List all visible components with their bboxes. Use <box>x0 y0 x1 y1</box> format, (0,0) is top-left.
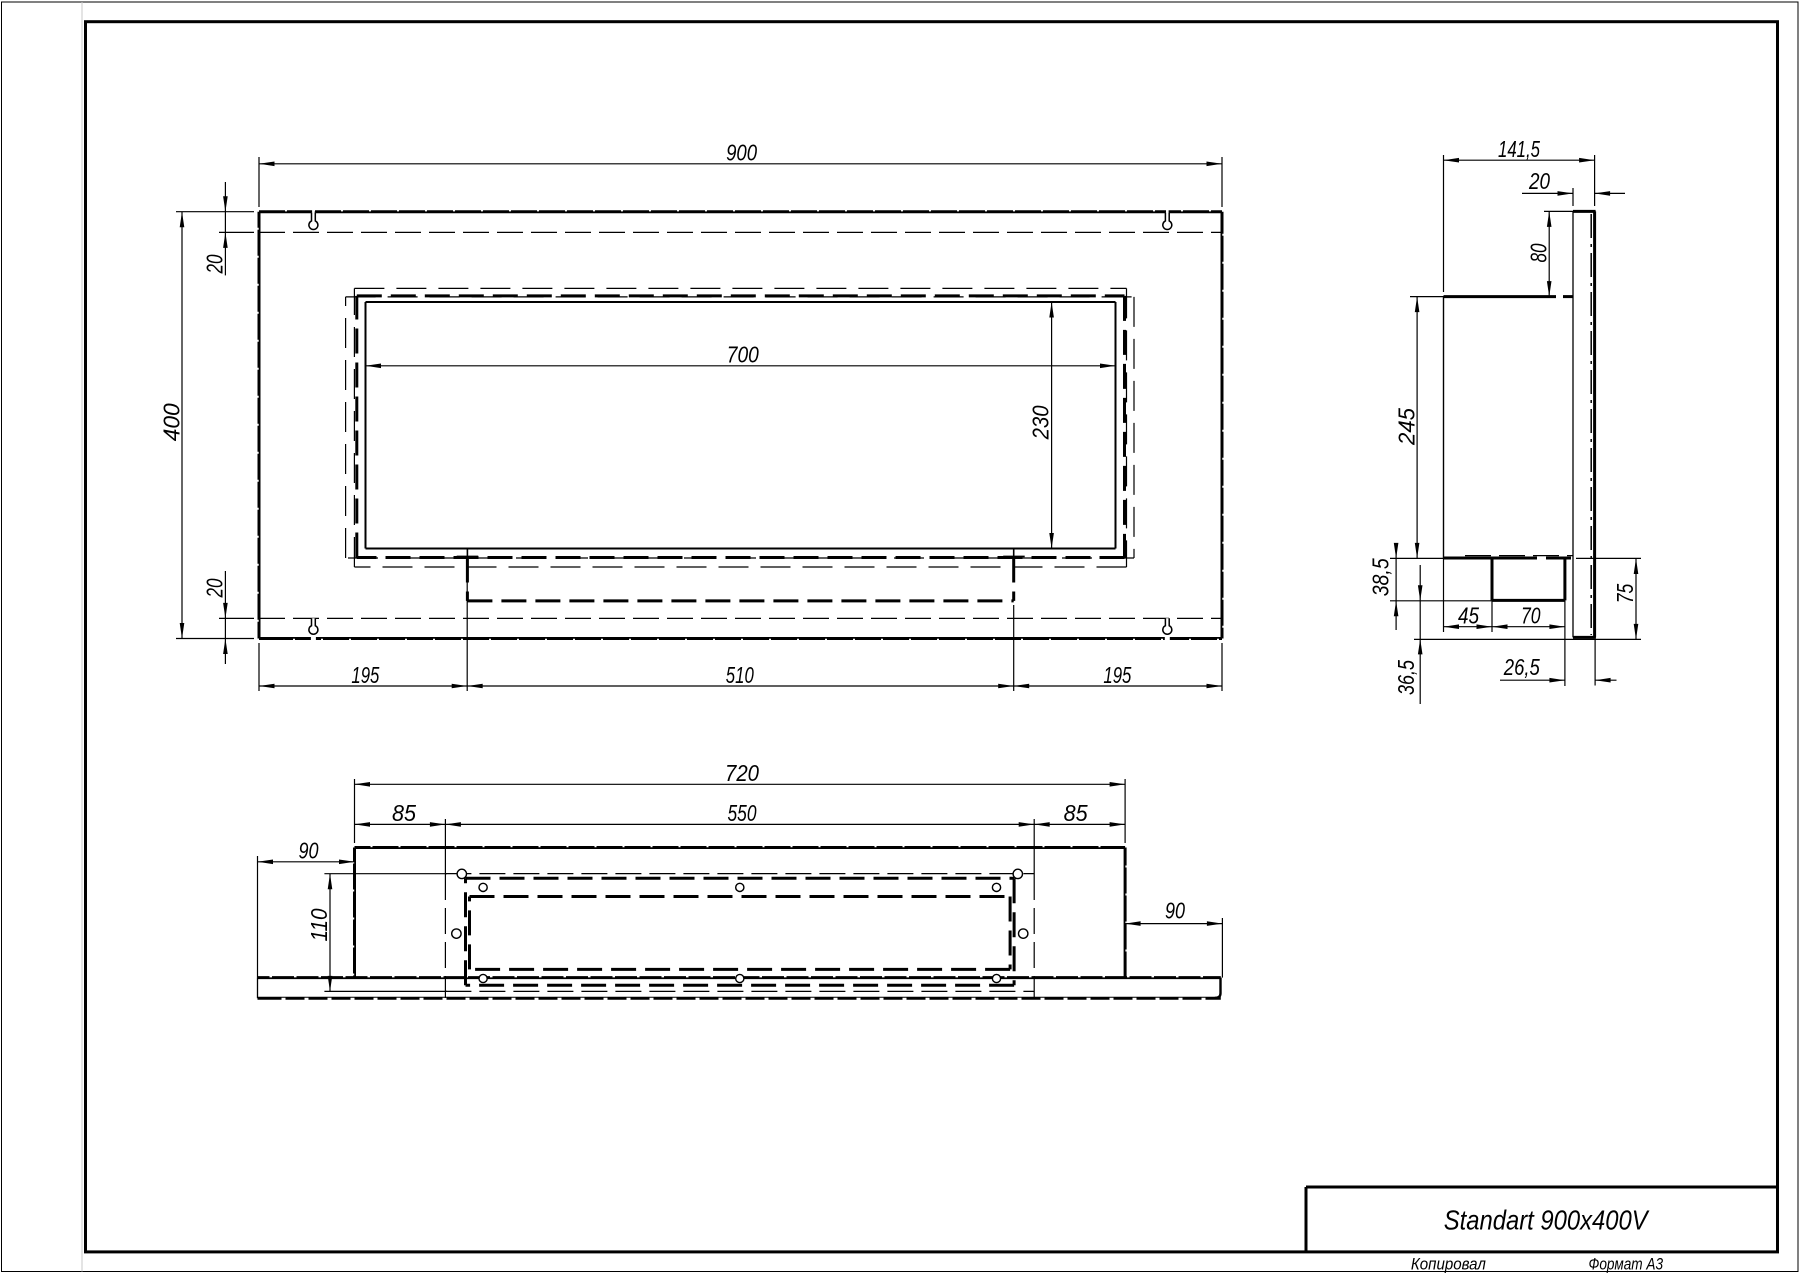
svg-text:720: 720 <box>725 760 759 786</box>
svg-text:75: 75 <box>1612 583 1638 603</box>
svg-text:Формат А3: Формат А3 <box>1589 1254 1664 1273</box>
svg-text:245: 245 <box>1393 407 1419 446</box>
svg-text:141,5: 141,5 <box>1498 136 1541 162</box>
svg-text:38,5: 38,5 <box>1368 558 1394 597</box>
svg-text:20: 20 <box>202 255 228 275</box>
svg-text:230: 230 <box>1028 405 1054 440</box>
svg-text:80: 80 <box>1526 244 1552 263</box>
svg-text:550: 550 <box>728 800 757 826</box>
svg-text:36,5: 36,5 <box>1393 659 1419 695</box>
svg-text:90: 90 <box>299 838 319 864</box>
svg-text:26,5: 26,5 <box>1503 654 1541 680</box>
svg-text:110: 110 <box>306 909 332 942</box>
svg-text:85: 85 <box>1064 800 1089 826</box>
svg-text:510: 510 <box>726 662 754 688</box>
svg-text:Standart 900x400V: Standart 900x400V <box>1444 1205 1650 1236</box>
svg-text:90: 90 <box>1165 898 1185 924</box>
svg-text:Копировал: Копировал <box>1411 1254 1486 1273</box>
svg-text:195: 195 <box>1103 662 1132 688</box>
svg-text:195: 195 <box>351 662 380 688</box>
svg-text:70: 70 <box>1521 602 1541 628</box>
svg-text:900: 900 <box>726 140 757 166</box>
svg-text:85: 85 <box>392 800 417 826</box>
svg-text:700: 700 <box>727 342 759 368</box>
svg-text:45: 45 <box>1458 602 1480 628</box>
svg-text:400: 400 <box>159 403 185 441</box>
svg-text:20: 20 <box>1528 168 1550 194</box>
svg-text:20: 20 <box>202 579 228 599</box>
